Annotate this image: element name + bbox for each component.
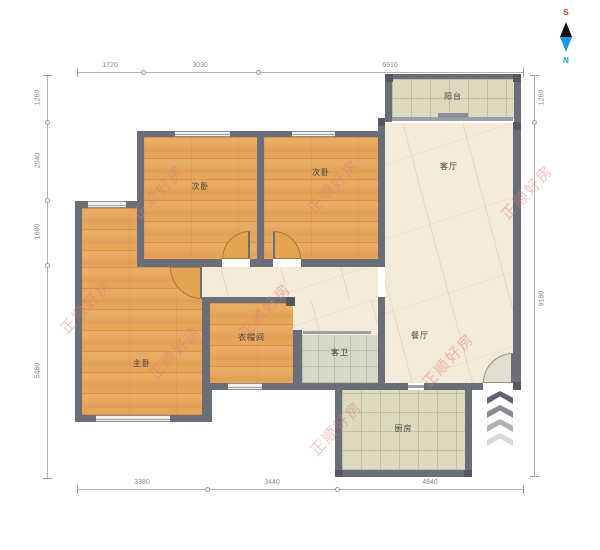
wall	[257, 131, 264, 267]
compass-needle-icon	[560, 37, 572, 52]
hallway-floor	[202, 267, 378, 300]
bath-door-line	[303, 331, 371, 334]
dim-tick	[45, 263, 50, 268]
master-label: 主卧	[82, 358, 202, 369]
dim-tick	[45, 198, 50, 203]
wall-post	[286, 297, 295, 306]
wall	[202, 297, 295, 303]
kitchen-label: 厨房	[342, 423, 465, 434]
wall-post	[378, 118, 385, 126]
wall	[465, 390, 472, 477]
wall	[137, 131, 144, 267]
wall	[335, 470, 472, 477]
dim-tick	[45, 120, 50, 125]
dim-bottom-1: 3380	[117, 479, 167, 486]
dim-line-left	[47, 75, 48, 478]
wall	[378, 297, 385, 387]
bedroom-right-label: 次卧	[264, 167, 378, 178]
compass-south-label: S	[559, 8, 573, 17]
dim-line-right	[534, 75, 535, 476]
dim-left-3: 1680	[35, 212, 42, 252]
floor-plan: 阳台 客厅 餐厅 客卫 厨房 次卧 次卧 主卧 衣帽间 1720 3030 69…	[0, 0, 600, 550]
wall	[301, 259, 385, 267]
bath-label: 客卫	[302, 347, 378, 358]
dim-left-4: 5460	[35, 351, 42, 391]
living-label: 客厅	[385, 161, 513, 172]
wall	[293, 330, 302, 390]
dim-tick	[205, 487, 210, 492]
balcony-slider-notch	[438, 113, 468, 118]
dim-tick	[43, 478, 52, 479]
wall	[202, 383, 228, 390]
entry-chevron	[487, 419, 513, 432]
wall	[75, 201, 82, 422]
dim-right-1: 1260	[539, 78, 546, 118]
window	[228, 383, 262, 390]
wall	[262, 383, 408, 390]
dim-right-2: 9180	[539, 279, 546, 319]
wall	[513, 122, 521, 390]
wall-post	[513, 122, 521, 130]
dim-left-2: 2040	[35, 141, 42, 181]
wall	[75, 415, 96, 422]
dim-tick	[532, 120, 537, 125]
wall	[137, 259, 222, 267]
compass-needle-icon	[560, 22, 572, 37]
dim-tick	[523, 68, 524, 77]
wall-post	[513, 382, 521, 390]
dim-tick	[77, 68, 78, 77]
cloakroom-floor	[210, 303, 293, 383]
entry-chevron	[487, 433, 513, 446]
dim-tick	[256, 70, 261, 75]
dim-tick	[335, 487, 340, 492]
window	[292, 131, 335, 137]
dim-bottom-3: 4840	[405, 479, 455, 486]
dim-top-1: 1720	[85, 62, 135, 69]
entry-chevron	[487, 405, 513, 418]
balcony-label: 阳台	[392, 91, 514, 102]
dim-tick	[530, 476, 539, 477]
wall-post	[385, 74, 393, 82]
wall	[424, 383, 483, 390]
wall	[250, 259, 273, 267]
dim-tick	[523, 485, 524, 494]
wall	[202, 297, 210, 390]
dim-bottom-2: 3440	[247, 479, 297, 486]
dim-top-3: 6910	[365, 62, 415, 69]
dim-left-1: 1260	[35, 78, 42, 118]
window	[175, 131, 230, 137]
bath-floor	[302, 335, 378, 383]
dim-tick	[77, 485, 78, 494]
entry-chevron	[487, 391, 513, 404]
window	[88, 201, 126, 208]
dim-tick	[43, 75, 52, 76]
dim-tick	[530, 75, 539, 76]
compass-north-label: N	[559, 56, 573, 65]
window	[96, 415, 170, 422]
bedroom-left-label: 次卧	[144, 181, 257, 192]
dining-label: 餐厅	[400, 330, 440, 341]
wall-post	[335, 470, 343, 477]
dim-tick	[141, 70, 146, 75]
master-floor-upper	[82, 208, 137, 267]
wall	[378, 118, 385, 267]
wall-post	[464, 470, 472, 477]
cloakroom-label: 衣帽间	[210, 332, 293, 343]
wall	[335, 390, 342, 477]
wall	[335, 131, 383, 137]
dim-line-bottom	[77, 489, 523, 490]
hallway-floor-south	[293, 300, 378, 335]
wall	[126, 201, 143, 208]
wall	[385, 74, 521, 79]
wall-post	[513, 74, 521, 82]
kitchen-door-line	[408, 385, 424, 388]
dim-top-2: 3030	[175, 62, 225, 69]
